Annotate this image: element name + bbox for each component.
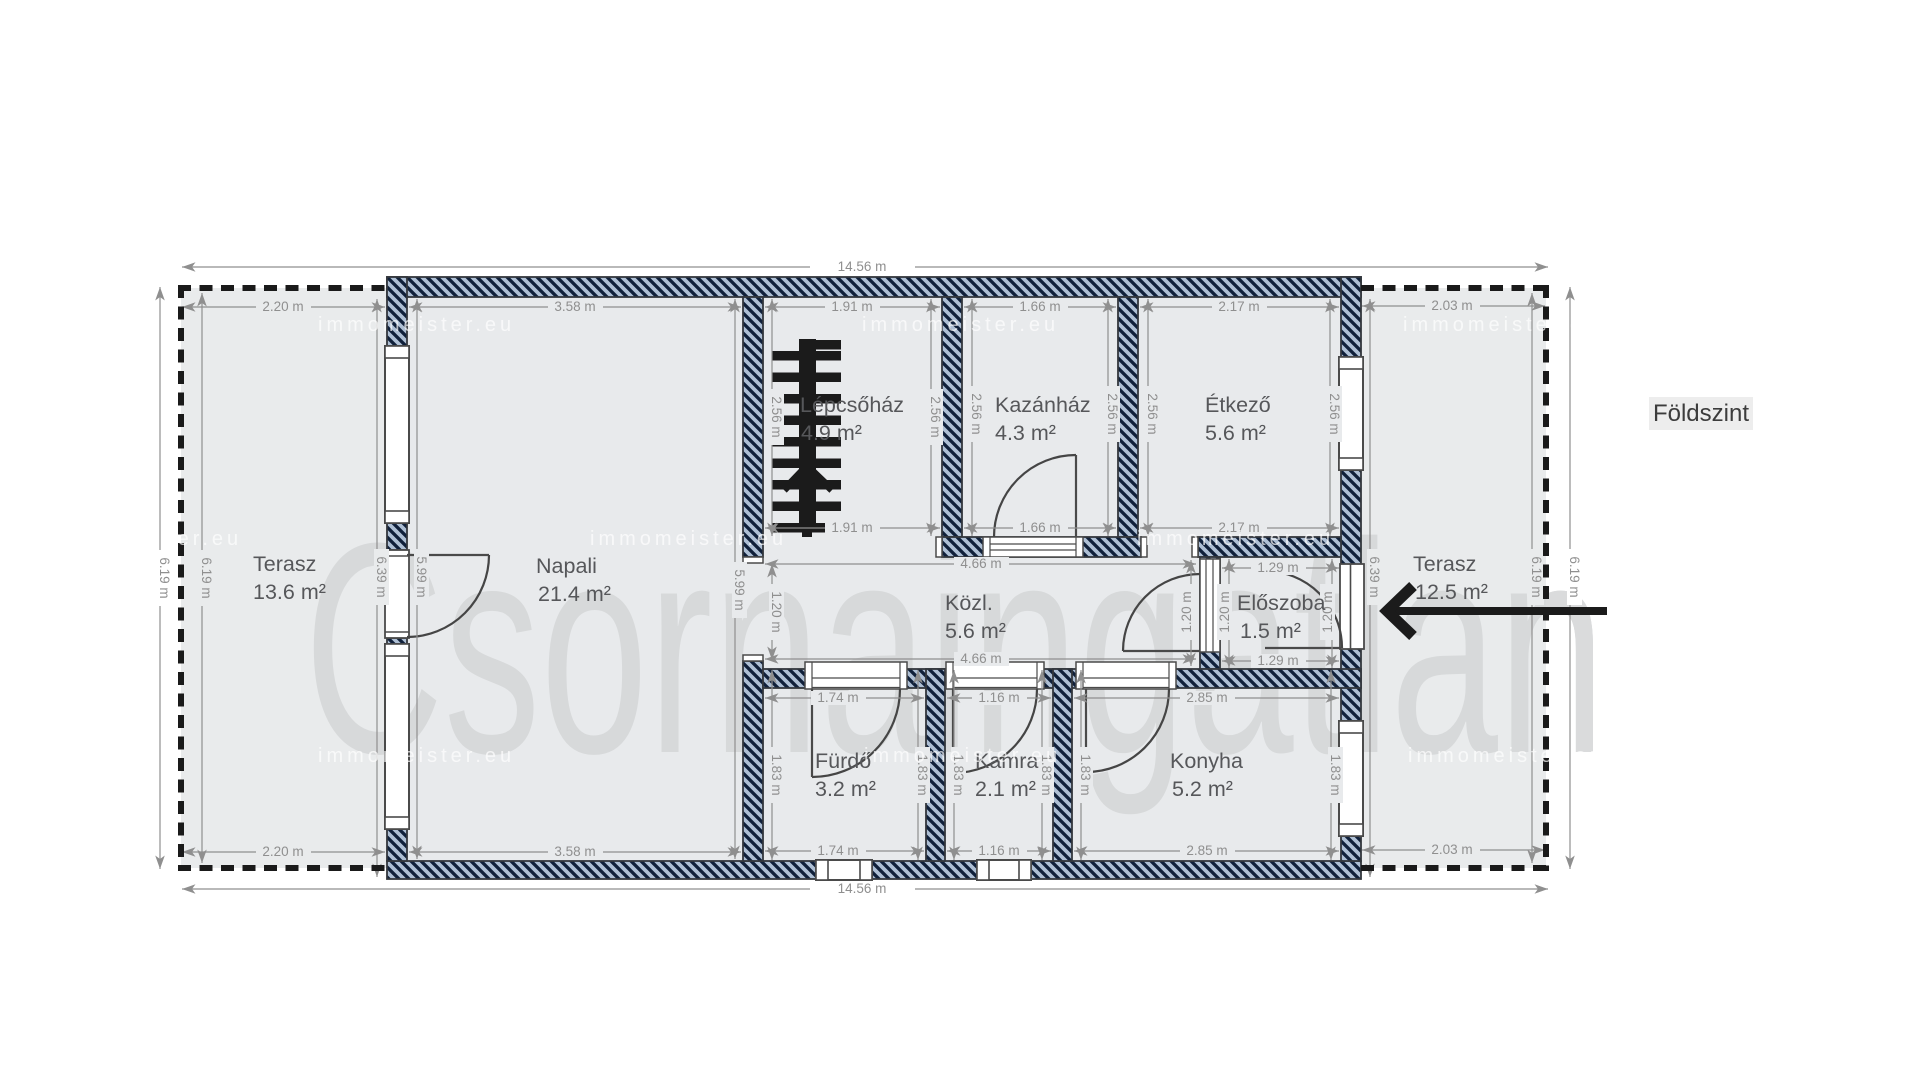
- svg-text:Napali: Napali: [536, 554, 597, 578]
- svg-text:immomeister.eu: immomeister.eu: [864, 745, 1061, 767]
- svg-text:14.56 m: 14.56 m: [838, 259, 887, 274]
- svg-text:2.20 m: 2.20 m: [262, 299, 303, 314]
- svg-text:5.99 m: 5.99 m: [732, 569, 747, 610]
- svg-text:5.99 m: 5.99 m: [414, 556, 429, 597]
- svg-text:2.1 m²: 2.1 m²: [975, 777, 1036, 801]
- svg-text:Terasz: Terasz: [253, 552, 316, 576]
- svg-text:4.66 m: 4.66 m: [960, 651, 1001, 666]
- svg-text:2.56 m: 2.56 m: [1145, 393, 1160, 434]
- svg-text:2.56 m: 2.56 m: [928, 396, 943, 437]
- svg-text:3.2 m²: 3.2 m²: [815, 777, 876, 801]
- svg-text:2.56 m: 2.56 m: [1105, 393, 1120, 434]
- svg-text:6.19 m: 6.19 m: [1529, 556, 1544, 597]
- svg-text:1.20 m: 1.20 m: [1217, 591, 1232, 632]
- svg-text:Konyha: Konyha: [1170, 749, 1243, 773]
- svg-text:immomeister.eu: immomeister.eu: [590, 528, 787, 550]
- svg-text:2.17 m: 2.17 m: [1218, 299, 1259, 314]
- svg-text:6.19 m: 6.19 m: [1567, 556, 1582, 597]
- svg-text:2.20 m: 2.20 m: [262, 844, 303, 859]
- svg-text:2.03 m: 2.03 m: [1431, 842, 1472, 857]
- svg-text:immomeister.eu: immomeister.eu: [1137, 528, 1334, 550]
- svg-text:1.91 m: 1.91 m: [831, 520, 872, 535]
- svg-text:1.66 m: 1.66 m: [1019, 299, 1060, 314]
- svg-text:1.74 m: 1.74 m: [817, 843, 858, 858]
- svg-text:1.29 m: 1.29 m: [1257, 560, 1298, 575]
- svg-text:1.29 m: 1.29 m: [1257, 653, 1298, 668]
- svg-text:2.85 m: 2.85 m: [1186, 690, 1227, 705]
- svg-text:12.5 m²: 12.5 m²: [1415, 580, 1488, 604]
- svg-text:Terasz: Terasz: [1413, 552, 1476, 576]
- svg-text:3.58 m: 3.58 m: [554, 844, 595, 859]
- svg-text:1.91 m: 1.91 m: [831, 299, 872, 314]
- svg-text:Fürdő: Fürdő: [815, 749, 871, 773]
- svg-text:Kazánház: Kazánház: [995, 393, 1091, 417]
- svg-text:Földszint: Földszint: [1653, 400, 1749, 427]
- svg-text:immomeister.eu: immomeister.eu: [1408, 745, 1605, 767]
- svg-text:13.6 m²: 13.6 m²: [253, 580, 326, 604]
- svg-text:14.56 m: 14.56 m: [838, 881, 887, 896]
- svg-text:1.83 m: 1.83 m: [769, 754, 784, 795]
- svg-text:6.19 m: 6.19 m: [157, 557, 172, 598]
- svg-text:2.03 m: 2.03 m: [1431, 298, 1472, 313]
- svg-text:1.16 m: 1.16 m: [978, 843, 1019, 858]
- svg-text:Étkező: Étkező: [1205, 392, 1271, 417]
- svg-text:immomeister.eu: immomeister.eu: [318, 745, 515, 767]
- svg-text:3.58 m: 3.58 m: [554, 299, 595, 314]
- svg-text:2.56 m: 2.56 m: [969, 393, 984, 434]
- svg-text:6.39 m: 6.39 m: [1367, 556, 1382, 597]
- svg-text:1.16 m: 1.16 m: [978, 690, 1019, 705]
- svg-text:5.6 m²: 5.6 m²: [945, 619, 1006, 643]
- svg-text:6.19 m: 6.19 m: [199, 557, 214, 598]
- svg-text:21.4 m²: 21.4 m²: [538, 582, 611, 606]
- svg-text:6.39 m: 6.39 m: [374, 556, 389, 597]
- svg-text:Lépcsőház: Lépcsőház: [800, 393, 904, 417]
- svg-text:2.56 m: 2.56 m: [769, 396, 784, 437]
- svg-text:immomeister.eu: immomeister.eu: [318, 314, 515, 336]
- svg-text:4.3 m²: 4.3 m²: [995, 421, 1056, 445]
- svg-text:Előszoba: Előszoba: [1237, 591, 1325, 615]
- svg-text:immomeister.eu: immomeister.eu: [1403, 314, 1600, 336]
- svg-text:2.56 m: 2.56 m: [1327, 393, 1342, 434]
- svg-text:1.20 m: 1.20 m: [1179, 591, 1194, 632]
- svg-text:5.2 m²: 5.2 m²: [1172, 777, 1233, 801]
- svg-text:2.85 m: 2.85 m: [1186, 843, 1227, 858]
- svg-text:immomeister.eu: immomeister.eu: [862, 314, 1059, 336]
- svg-text:1.66 m: 1.66 m: [1019, 520, 1060, 535]
- svg-text:4.66 m: 4.66 m: [960, 556, 1001, 571]
- svg-text:1.83 m: 1.83 m: [1078, 754, 1093, 795]
- svg-text:4.9 m²: 4.9 m²: [801, 421, 862, 445]
- svg-text:1.5 m²: 1.5 m²: [1240, 619, 1301, 643]
- svg-text:1.20 m: 1.20 m: [769, 591, 784, 632]
- svg-text:5.6 m²: 5.6 m²: [1205, 421, 1266, 445]
- svg-text:Közl.: Közl.: [945, 591, 993, 615]
- svg-text:1.83 m: 1.83 m: [1328, 754, 1343, 795]
- svg-text:1.74 m: 1.74 m: [817, 690, 858, 705]
